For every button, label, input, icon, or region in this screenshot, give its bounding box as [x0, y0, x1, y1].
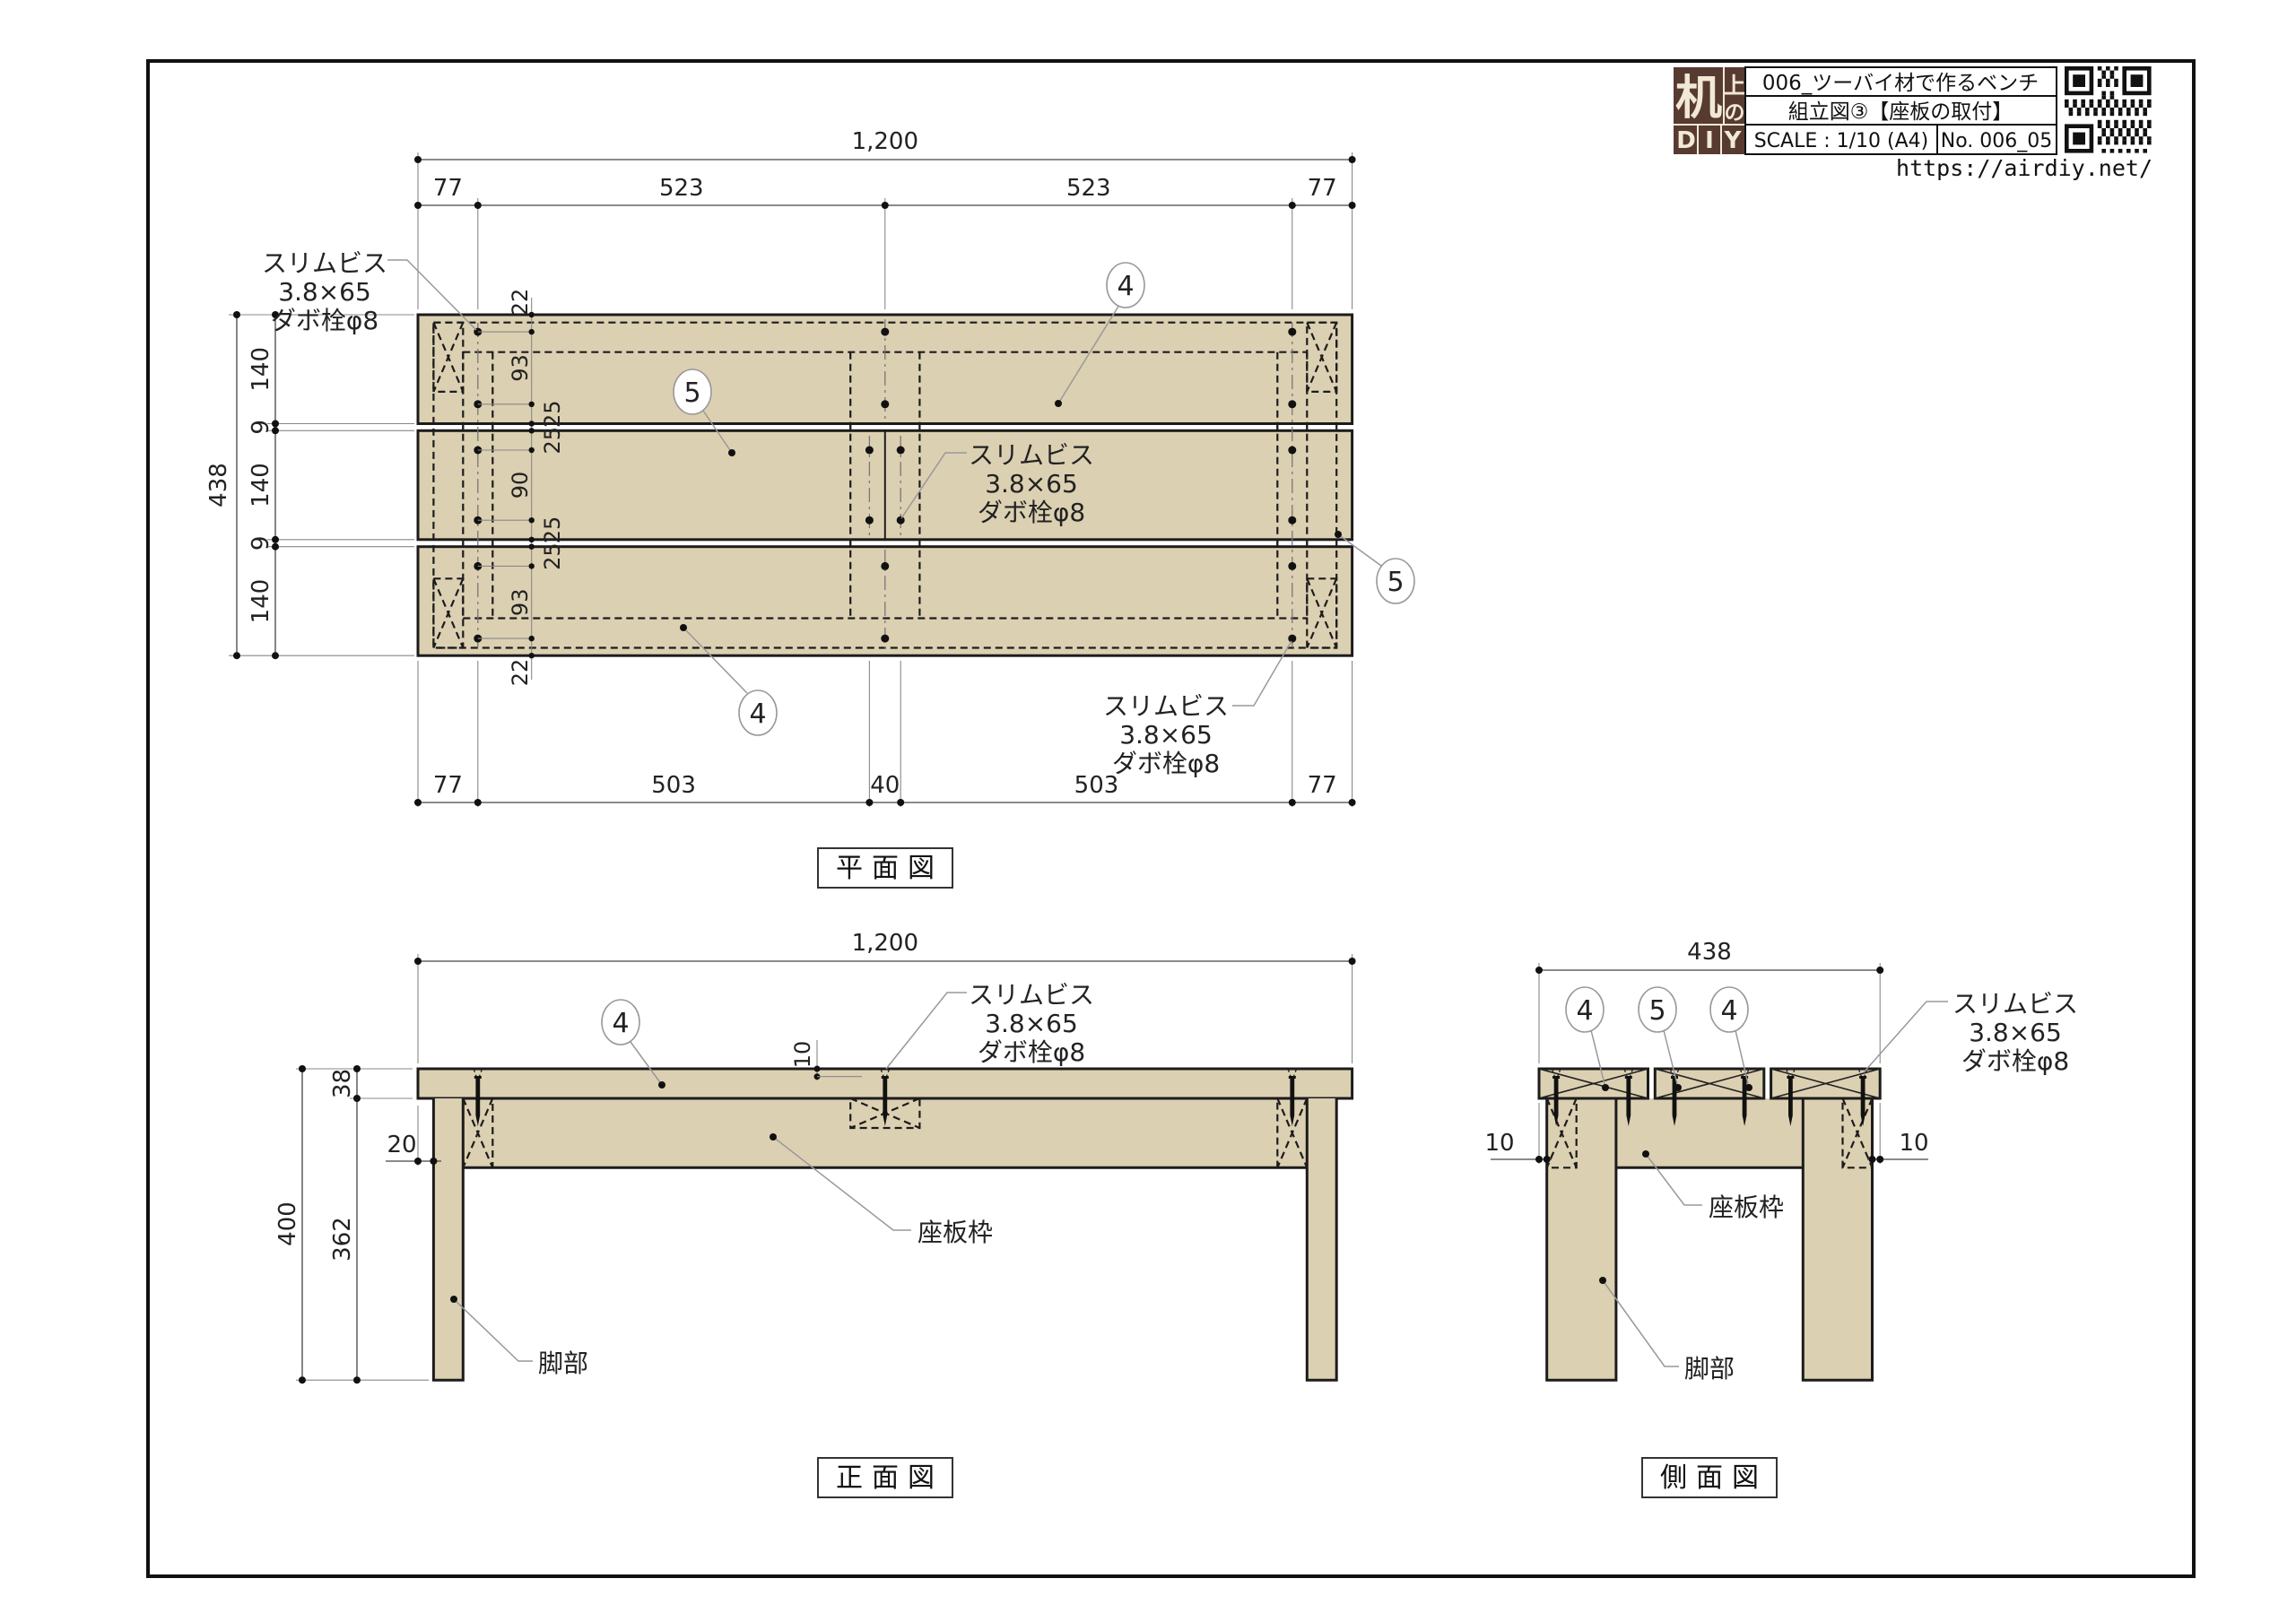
side-screw-note: スリムビス 3.8×65 ダボ栓φ8 [1864, 989, 2078, 1076]
plan-chain-25-a: 25 [540, 400, 565, 428]
plan-chain-25-c: 25 [540, 516, 565, 544]
svg-text:スリムビス: スリムビス [969, 980, 1094, 1010]
svg-text:3.8×65: 3.8×65 [985, 469, 1078, 499]
front-dim-thickness: 38 [329, 1069, 356, 1098]
svg-text:ダボ栓φ8: ダボ栓φ8 [1112, 749, 1220, 778]
qr-code-icon [2065, 66, 2152, 153]
logo: 机 上 の D I Y [1674, 67, 1746, 154]
plan-dim-row-1: 9 [248, 420, 274, 435]
drawing-number: No. 006_05 [1941, 130, 2053, 152]
logo-top-kanji: 上 [1723, 73, 1745, 99]
plan-dim-row-3: 9 [248, 536, 274, 551]
front-view: 1,200 38 362 400 20 10 4 スリムビス 3.8×65 ダボ… [274, 930, 1356, 1497]
svg-text:3.8×65: 3.8×65 [985, 1009, 1078, 1038]
front-leg-right [1307, 1098, 1336, 1380]
front-dim-total: 1,200 [852, 930, 918, 957]
side-label-leg: 脚部 [1599, 1277, 1735, 1383]
svg-text:5: 5 [1387, 567, 1404, 598]
plan-dim-top-0: 77 [433, 175, 463, 202]
side-leg-right [1803, 1098, 1872, 1380]
front-dim-inset: 20 [387, 1132, 416, 1158]
front-dim-leg-length: 362 [329, 1217, 356, 1262]
drawing-title: 組立図③【座板の取付】 [1788, 100, 2013, 124]
plan-dim-row-2: 140 [248, 463, 274, 507]
svg-text:スリムビス: スリムビス [1103, 691, 1229, 721]
plan-view-title: 平面図 [818, 848, 952, 888]
drawing-scale: SCALE : 1/10 (A4) [1754, 130, 1929, 152]
svg-text:脚部: 脚部 [1684, 1354, 1735, 1383]
plan-dim-bottom-4: 77 [1308, 772, 1337, 799]
logo-letter-y: Y [1724, 127, 1743, 154]
svg-text:3.8×65: 3.8×65 [1119, 720, 1213, 750]
plan-chain-22-bottom: 22 [508, 659, 533, 687]
logo-mid-kana: の [1725, 101, 1745, 125]
drawing-sheet: 机 上 の D I Y 006_ツーバイ材で作るベンチ 組立図③【座板の取付】 … [0, 0, 2296, 1622]
svg-text:スリムビス: スリムビス [969, 440, 1094, 470]
front-dim-dowel-depth: 10 [790, 1041, 815, 1069]
plan-dim-row-4: 140 [248, 579, 274, 624]
svg-text:ダボ栓φ8: ダボ栓φ8 [978, 498, 1085, 527]
side-leg-left [1547, 1098, 1616, 1380]
logo-letter-d: D [1676, 127, 1696, 154]
svg-text:座板枠: 座板枠 [1709, 1193, 1784, 1222]
svg-text:側面図: 側面図 [1660, 1462, 1768, 1494]
front-label-leg: 脚部 [450, 1296, 588, 1378]
side-dim-inset-left: 10 [1484, 1130, 1514, 1157]
svg-text:5: 5 [1648, 995, 1665, 1027]
plan-chain-25-b: 25 [540, 427, 565, 455]
svg-text:5: 5 [683, 377, 700, 409]
svg-text:4: 4 [1117, 271, 1134, 302]
svg-text:ダボ栓φ8: ダボ栓φ8 [978, 1037, 1085, 1067]
plan-chain-22-top: 22 [508, 289, 533, 317]
svg-text:4: 4 [1576, 995, 1593, 1027]
plan-dim-depth: 438 [205, 463, 232, 507]
svg-text:正面図: 正面図 [836, 1462, 944, 1494]
plan-dim-bottom-2: 40 [870, 772, 900, 799]
logo-main-kanji: 机 [1675, 72, 1722, 126]
plan-dim-bottom-1: 503 [651, 772, 696, 799]
plan-dim-bottom-0: 77 [433, 772, 463, 799]
svg-text:スリムビス: スリムビス [1952, 989, 2078, 1019]
plan-dim-top-2: 523 [1066, 175, 1111, 202]
svg-text:4: 4 [612, 1008, 629, 1039]
title-table: 006_ツーバイ材で作るベンチ 組立図③【座板の取付】 SCALE : 1/10… [1745, 67, 2057, 154]
plan-chain-93-top: 93 [508, 354, 533, 382]
side-view-title: 側面図 [1642, 1458, 1777, 1497]
plan-chain-93-bottom: 93 [508, 589, 533, 617]
svg-text:平面図: 平面図 [836, 853, 944, 884]
svg-text:スリムビス: スリムビス [262, 248, 387, 278]
title-block: 机 上 の D I Y 006_ツーバイ材で作るベンチ 組立図③【座板の取付】 … [1674, 66, 2152, 181]
svg-text:3.8×65: 3.8×65 [278, 277, 371, 307]
svg-text:脚部: 脚部 [538, 1349, 588, 1378]
plan-dim-total: 1,200 [852, 128, 918, 155]
svg-text:座板枠: 座板枠 [918, 1218, 993, 1247]
side-dim-inset-right: 10 [1899, 1130, 1928, 1157]
svg-text:3.8×65: 3.8×65 [1969, 1018, 2062, 1047]
side-seat-boards [1539, 1069, 1880, 1098]
plan-dim-top-1: 523 [659, 175, 704, 202]
front-leg-left [433, 1098, 463, 1380]
front-screw-note: スリムビス 3.8×65 ダボ栓φ8 [886, 980, 1094, 1069]
front-dim-height: 400 [274, 1201, 301, 1246]
website-url: https://airdiy.net/ [1896, 155, 2152, 181]
svg-text:4: 4 [1720, 995, 1737, 1027]
side-view: 438 10 10 4 5 4 スリムビス 3.8×65 ダボ栓φ8 [1484, 939, 2078, 1497]
svg-text:4: 4 [749, 698, 766, 730]
plan-dim-row-0: 140 [248, 347, 274, 392]
side-dim-total: 438 [1687, 939, 1732, 966]
plan-screw-note-bottomright: スリムビス 3.8×65 ダボ栓φ8 [1103, 641, 1291, 778]
plan-dim-top-3: 77 [1308, 175, 1337, 202]
plan-view: 1,200 77 523 523 77 438 140 9 140 9 140 … [205, 128, 1414, 888]
plan-chain-25-d: 25 [540, 542, 565, 570]
logo-letter-i: I [1705, 127, 1714, 154]
svg-text:ダボ栓φ8: ダボ栓φ8 [271, 306, 378, 335]
svg-text:ダボ栓φ8: ダボ栓φ8 [1961, 1046, 2069, 1076]
product-title: 006_ツーバイ材で作るベンチ [1762, 72, 2039, 95]
front-view-title: 正面図 [818, 1458, 952, 1497]
plan-chain-90: 90 [508, 472, 533, 499]
